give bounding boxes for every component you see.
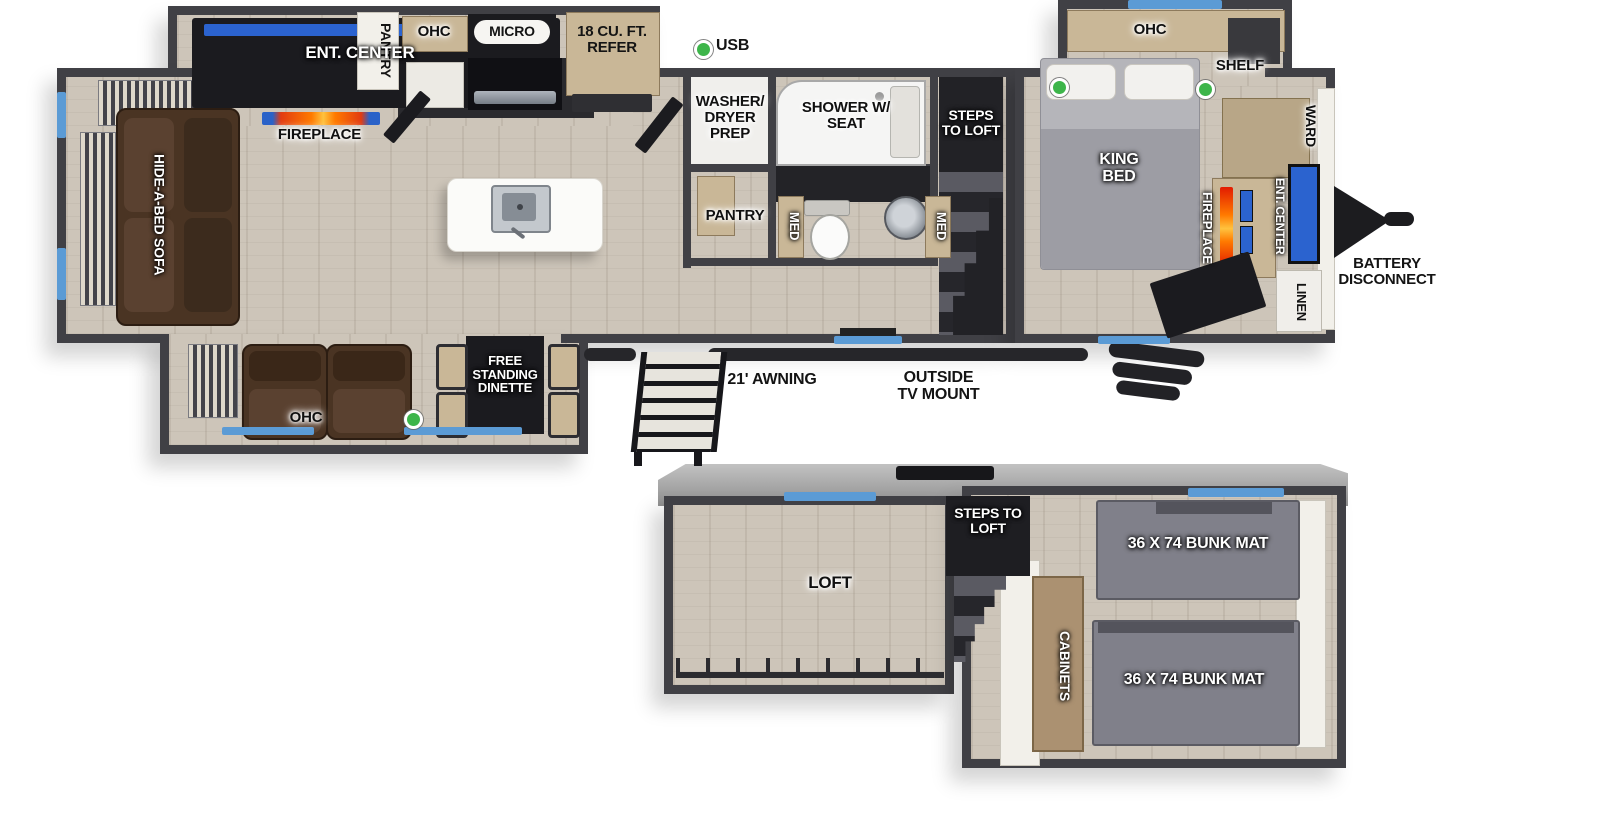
- slide-window: [404, 427, 522, 435]
- loft-label: LOFT: [790, 574, 870, 592]
- awning-label: 21' AWNING: [722, 372, 822, 389]
- shelf-label: SHELF: [1202, 58, 1278, 74]
- stove-cooktop: [468, 58, 562, 110]
- bedroom-window: [1128, 0, 1222, 9]
- pillow: [1124, 64, 1194, 100]
- bed-blanket: [1041, 129, 1199, 269]
- bedroom-fireplace-label: FIREPLACE: [1196, 182, 1214, 274]
- bunk-top-label: 36 X 74 BUNK MAT: [1100, 536, 1296, 553]
- med-left-label: MED: [779, 200, 801, 252]
- rear-window: [57, 92, 66, 138]
- hitch-tongue: [1334, 186, 1390, 258]
- rear-fireplace-label: FIREPLACE: [252, 127, 387, 143]
- ward-label: WARD: [1296, 96, 1318, 156]
- bunk-headboard: [1098, 622, 1294, 633]
- bath-pantry-cabinet: [697, 176, 735, 236]
- kitchen-ohc-label: OHC: [404, 24, 464, 40]
- step-leg: [694, 452, 702, 466]
- dinette-chair: [548, 344, 580, 390]
- bedroom-ent-center-label: ENT. CENTER: [1268, 166, 1286, 266]
- dinette-chair: [548, 392, 580, 438]
- cabinets-label: CABINETS: [1042, 596, 1072, 736]
- usb-indicator-dot: [404, 410, 423, 429]
- usb-indicator-dot: [1050, 78, 1069, 97]
- tv-mount-label: OUTSIDE TV MOUNT: [896, 370, 981, 404]
- usb-indicator-dot: [694, 40, 713, 59]
- side-window-blinds: [80, 132, 116, 306]
- bunk-front-wall: [1296, 500, 1326, 748]
- steps-loft-label: STEPS TO LOFT: [948, 506, 1028, 535]
- bunk-headboard: [1156, 502, 1272, 514]
- washer-dryer-label: WASHER/ DRYER PREP: [690, 94, 770, 141]
- awning-roller: [708, 348, 1088, 361]
- loft-railing-bar: [676, 672, 944, 678]
- step-leg: [634, 452, 642, 466]
- rear-fireplace-insert: [262, 112, 380, 125]
- refrigerator-label: 18 CU. FT. REFER: [576, 24, 648, 56]
- king-bed-label: KING BED: [1094, 152, 1144, 186]
- slide-window: [222, 427, 314, 435]
- usb-indicator-dot: [1196, 80, 1215, 99]
- usb-label: USB: [716, 38, 760, 55]
- entry-steps: [631, 352, 728, 452]
- refrigerator-front: [572, 94, 652, 112]
- doorside-window: [1098, 336, 1170, 344]
- dinette-label: FREE STANDING DINETTE: [467, 354, 543, 395]
- bunk-bottom-label: 36 X 74 BUNK MAT: [1096, 672, 1292, 689]
- bedroom-entry-steps: [1094, 334, 1212, 417]
- seats-ohc-label: OHC: [276, 410, 336, 426]
- bath-wall: [683, 258, 938, 266]
- tv-screen: [1240, 190, 1253, 222]
- shower-label: SHOWER W/ SEAT: [790, 100, 902, 132]
- rear-ent-center-label: ENT. CENTER: [230, 44, 490, 62]
- bedroom-fireplace-insert: [1220, 187, 1233, 267]
- microwave-label: MICRO: [474, 24, 550, 39]
- toilet-bowl: [810, 214, 850, 260]
- bath-pantry-label: PANTRY: [700, 208, 770, 224]
- tv-screen: [1240, 226, 1253, 254]
- loft-window: [784, 492, 876, 501]
- med-right-label: MED: [926, 200, 948, 252]
- bedroom-ent-center-tv: [1288, 164, 1320, 264]
- kitchen-island: [447, 178, 603, 252]
- roof-tv-mount-bar: [896, 466, 994, 480]
- dinette-chair: [436, 344, 468, 390]
- island-sink: [491, 185, 551, 233]
- battery-disconnect-label: BATTERY DISCONNECT: [1328, 256, 1446, 288]
- awning-roller: [584, 348, 636, 361]
- bedroom-ohc-label: OHC: [1120, 22, 1180, 38]
- slide-window-blinds: [188, 344, 238, 418]
- rear-window: [57, 248, 66, 300]
- steps-main-label: STEPS TO LOFT: [941, 108, 1001, 137]
- theater-seat: [326, 344, 412, 440]
- floorplan-canvas: HIDE-A-BED SOFA ENT. CENTER FIREPLACE PA…: [0, 0, 1600, 840]
- doorside-window: [834, 336, 902, 344]
- lav-sink: [884, 196, 928, 240]
- hitch-coupler: [1384, 212, 1414, 226]
- linen-label: LINEN: [1286, 276, 1308, 328]
- sofa-label: HIDE-A-BED SOFA: [152, 140, 196, 290]
- bunk-window: [1188, 488, 1284, 497]
- stove-grate: [474, 91, 556, 104]
